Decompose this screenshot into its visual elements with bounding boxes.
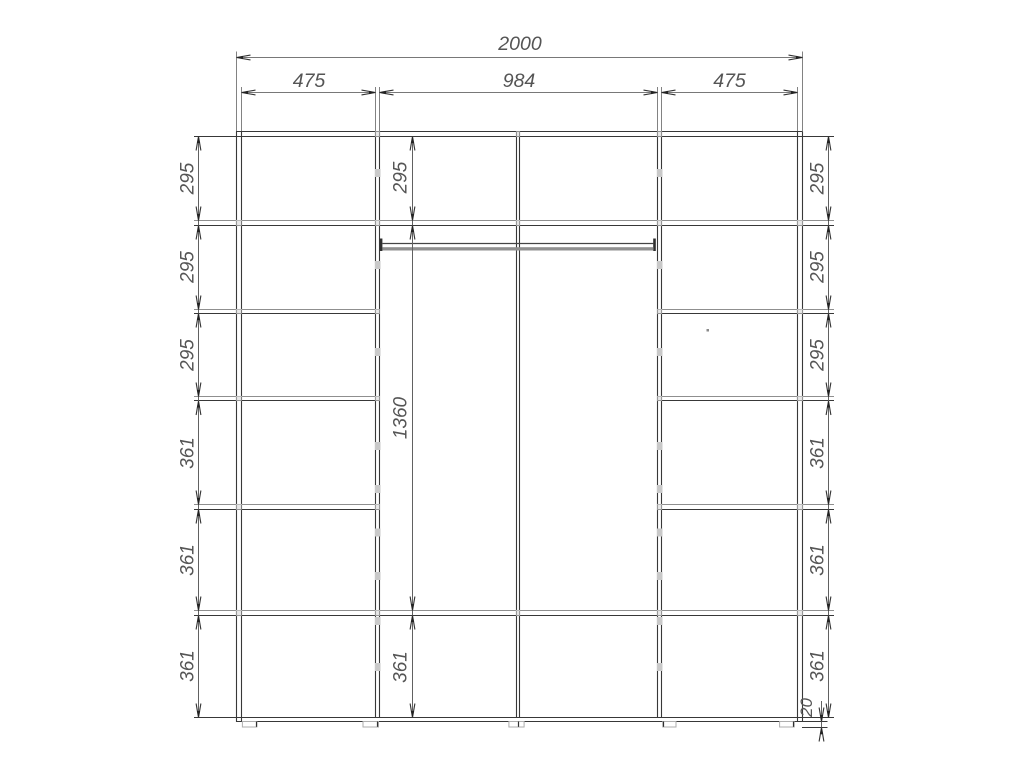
svg-text:361: 361: [391, 651, 412, 683]
svg-text:295: 295: [178, 339, 199, 372]
svg-text:361: 361: [808, 650, 829, 682]
svg-text:20: 20: [797, 698, 816, 718]
svg-text:295: 295: [391, 161, 412, 194]
svg-text:1360: 1360: [391, 396, 412, 439]
svg-text:361: 361: [178, 437, 199, 469]
svg-text:361: 361: [178, 544, 199, 576]
svg-text:295: 295: [808, 339, 829, 372]
svg-text:295: 295: [808, 162, 829, 195]
svg-text:361: 361: [808, 544, 829, 576]
svg-text:475: 475: [713, 70, 746, 92]
svg-text:984: 984: [503, 70, 536, 92]
svg-text:295: 295: [178, 251, 199, 284]
svg-text:361: 361: [178, 650, 199, 682]
svg-text:361: 361: [808, 437, 829, 469]
svg-text:2000: 2000: [497, 33, 542, 55]
svg-text:295: 295: [808, 251, 829, 284]
svg-text:295: 295: [178, 162, 199, 195]
svg-text:475: 475: [293, 70, 326, 92]
